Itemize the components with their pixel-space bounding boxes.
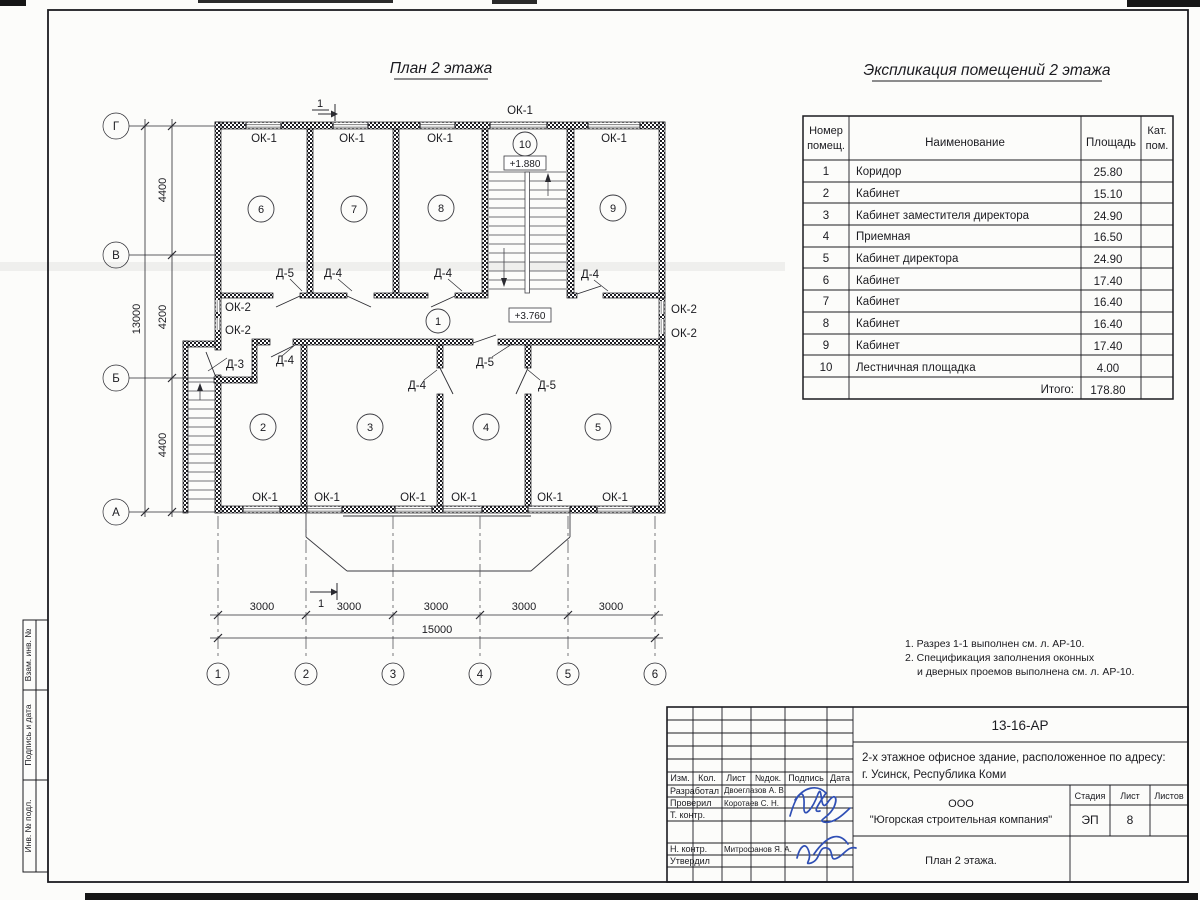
drawing-canvas: Взам. инв. № Подпись и дата Инв. № подл.… <box>0 0 1200 900</box>
col-kol: Кол. <box>698 773 716 783</box>
grid-6: 6 <box>652 669 658 681</box>
d4-label: Д-4 <box>276 355 295 367</box>
row-area: 4.00 <box>1097 363 1119 375</box>
row-num: 2 <box>823 188 829 200</box>
row-area: 25.80 <box>1094 167 1123 179</box>
grid-4: 4 <box>477 669 484 681</box>
walls <box>183 122 665 513</box>
company-line1: ООО <box>948 798 974 810</box>
col-date: Дата <box>830 773 850 783</box>
doc-number: 13-16-АР <box>991 718 1048 733</box>
ok1-label: ОК-1 <box>507 105 533 117</box>
section-marks: 1 1 <box>310 98 338 610</box>
row-area: 17.40 <box>1094 276 1123 288</box>
dim-bay-3: 3000 <box>424 601 448 613</box>
ok1-label: ОК-1 <box>602 492 628 504</box>
row-name: Кабинет <box>856 275 900 287</box>
stage-label: Стадия <box>1075 791 1106 801</box>
row-name: Кабинет <box>856 296 900 308</box>
table-row: 4 Приемная 16.50 <box>823 231 1123 244</box>
d4-label: Д-4 <box>434 268 453 280</box>
ok2-label: ОК-2 <box>225 325 251 337</box>
room-4: 4 <box>483 422 489 434</box>
dim-bay-5: 3000 <box>599 601 623 613</box>
drawing-sheet: Взам. инв. № Подпись и дата Инв. № подл.… <box>0 0 1200 900</box>
person-ncontrol: Митрофанов Я. А. <box>724 845 792 854</box>
sheet-number: 8 <box>1127 813 1134 827</box>
row-num: 4 <box>823 231 830 243</box>
stamp-podpis: Подпись и дата <box>23 704 33 765</box>
person-developed: Двоеглазов А. В. <box>724 786 786 795</box>
d5-label: Д-5 <box>476 357 494 369</box>
title-block-header-row: Изм. Кол. Лист №док. Подпись Дата <box>670 773 850 783</box>
d4-label: Д-4 <box>581 269 600 281</box>
row-area: 17.40 <box>1094 341 1123 353</box>
row-area: 16.40 <box>1094 297 1123 309</box>
room-6: 6 <box>258 204 264 216</box>
level-stair: +1.880 <box>510 159 541 170</box>
role-developed: Разработал <box>670 786 719 796</box>
row-name: Кабинет директора <box>856 253 959 265</box>
table-row: 8 Кабинет 16.40 <box>823 318 1123 331</box>
d5-label: Д-5 <box>276 268 294 280</box>
row-name: Кабинет <box>856 318 900 330</box>
left-dimensions: 4400 4200 4400 13000 <box>131 119 176 517</box>
col-area: Площадь <box>1086 137 1136 149</box>
table-row: 2 Кабинет 15.10 <box>823 188 1123 201</box>
col-list: Лист <box>726 773 746 783</box>
titles: План 2 этажа Экспликация помещений 2 эта… <box>390 60 1111 81</box>
dim-total-width: 15000 <box>422 624 453 636</box>
row-name: Кабинет <box>856 340 900 352</box>
title-block-right: 13-16-АР 2-х этажное офисное здание, рас… <box>862 718 1184 867</box>
grid-1: 1 <box>215 669 221 681</box>
row-num: 6 <box>823 275 829 287</box>
axis-b: Б <box>112 373 120 385</box>
axis-v: В <box>112 250 120 262</box>
table-row: 10 Лестничная площадка 4.00 <box>820 362 1120 375</box>
external-stair <box>188 382 215 499</box>
title-block-roles: Разработал Проверил Т. контр. Н. контр. … <box>670 786 792 866</box>
room-8: 8 <box>438 203 444 215</box>
signature-ncontrol <box>797 837 856 864</box>
col-cat-line2: пом. <box>1146 140 1169 152</box>
ok1-label: ОК-1 <box>251 133 277 145</box>
stamp-vzam: Взам. инв. № <box>23 629 33 682</box>
door-labels: Д-5 Д-4 Д-4 Д-4 Д-3 Д-4 Д-5 Д-4 Д-5 <box>226 268 600 392</box>
plan-title: План 2 этажа <box>390 60 493 77</box>
col-cat-line1: Кат. <box>1147 125 1166 137</box>
ok1-label: ОК-1 <box>427 133 453 145</box>
table-row: 3 Кабинет заместителя директора 24.90 <box>823 210 1123 223</box>
col-sign: Подпись <box>788 773 824 783</box>
row-name: Коридор <box>856 166 901 178</box>
room-2: 2 <box>260 422 266 434</box>
sheet-label: Лист <box>1120 791 1140 801</box>
room-7: 7 <box>351 204 357 216</box>
col-ndoc: №док. <box>755 773 781 783</box>
internal-stair <box>489 172 566 293</box>
level-corridor: +3.760 <box>515 311 546 322</box>
ok2-label: ОК-2 <box>225 302 251 314</box>
section-label-top: 1 <box>317 98 323 110</box>
role-tcontrol: Т. контр. <box>670 810 705 820</box>
table-header: Номер помещ. Наименование Площадь Кат. п… <box>807 125 1168 152</box>
role-approved: Утвердил <box>670 856 710 866</box>
dim-bay-1: 3000 <box>250 601 274 613</box>
grid-3: 3 <box>390 669 396 681</box>
sheet-name: План 2 этажа. <box>925 855 997 867</box>
table-row: 5 Кабинет директора 24.90 <box>823 253 1123 266</box>
table-row: 9 Кабинет 17.40 <box>823 340 1123 353</box>
d4-label: Д-4 <box>324 268 343 280</box>
row-num: 7 <box>823 296 829 308</box>
object-name-line1: 2-х этажное офисное здание, расположенно… <box>862 752 1166 764</box>
row-num: 8 <box>823 318 829 330</box>
floor-plan: Г В Б А 4400 4200 4400 13000 <box>103 98 697 685</box>
specification-table: Номер помещ. Наименование Площадь Кат. п… <box>803 116 1173 399</box>
row-name: Кабинет заместителя директора <box>856 210 1030 222</box>
row-name: Приемная <box>856 231 910 243</box>
row-num: 1 <box>823 166 829 178</box>
window-labels: ОК-1 ОК-1 ОК-1 ОК-1 ОК-1 ОК-1 ОК-1 ОК-1 … <box>225 105 697 504</box>
ok1-label: ОК-1 <box>339 133 365 145</box>
axis-g: Г <box>113 121 120 133</box>
col-num-line1: Номер <box>809 125 843 137</box>
margin-stamp-labels: Взам. инв. № Подпись и дата Инв. № подл. <box>23 629 33 853</box>
axis-a: А <box>112 507 120 519</box>
room-1: 1 <box>435 316 441 328</box>
note-1: 1. Разрез 1-1 выполнен см. л. АР-10. <box>905 638 1084 650</box>
row-num: 5 <box>823 253 829 265</box>
company-line2: "Югорская строительная компания" <box>870 814 1053 826</box>
role-checked: Проверил <box>670 798 711 808</box>
ok1-label: ОК-1 <box>314 492 340 504</box>
dim-v2: 4200 <box>157 305 169 329</box>
note-2: 2. Спецификация заполнения оконных <box>905 652 1095 664</box>
d5-label: Д-5 <box>538 380 556 392</box>
role-ncontrol: Н. контр. <box>670 844 707 854</box>
dim-bay-2: 3000 <box>337 601 361 613</box>
total-label: Итого: <box>1041 384 1074 396</box>
table-row: 1 Коридор 25.80 <box>823 166 1123 179</box>
col-izm: Изм. <box>670 773 689 783</box>
signatures <box>790 788 856 864</box>
note-2-cont: и дверных проемов выполнена см. л. АР-10… <box>917 666 1134 678</box>
object-name-line2: г. Усинск, Республика Коми <box>862 769 1006 781</box>
grid-2: 2 <box>303 669 309 681</box>
column-grid: 3000 3000 3000 3000 3000 15000 1 2 3 4 5… <box>207 516 666 685</box>
ok1-label: ОК-1 <box>601 133 627 145</box>
stage-value: ЭП <box>1081 813 1098 827</box>
row-area: 16.50 <box>1094 232 1123 244</box>
table-row: 6 Кабинет 17.40 <box>823 275 1123 288</box>
row-area: 24.90 <box>1094 211 1123 223</box>
table-total-row: Итого: 178.80 <box>1041 384 1126 397</box>
col-name: Наименование <box>925 137 1005 149</box>
row-num: 10 <box>820 362 833 374</box>
room-9: 9 <box>610 203 616 215</box>
dim-total-height: 13000 <box>131 304 143 335</box>
dim-v3: 4400 <box>157 433 169 457</box>
d3-label: Д-3 <box>226 359 244 371</box>
room-3: 3 <box>367 422 373 434</box>
row-area: 15.10 <box>1094 189 1123 201</box>
table-title: Экспликация помещений 2 этажа <box>863 62 1110 79</box>
ok2-label: ОК-2 <box>671 304 697 316</box>
ok1-label: ОК-1 <box>451 492 477 504</box>
row-num: 9 <box>823 340 829 352</box>
total-value: 178.80 <box>1090 385 1125 397</box>
row-area: 16.40 <box>1094 319 1123 331</box>
col-num-line2: помещ. <box>807 140 845 152</box>
section-label-bottom: 1 <box>318 598 324 610</box>
stamp-inv: Инв. № подл. <box>23 800 33 853</box>
person-checked: Коротаев С. Н. <box>724 799 779 808</box>
row-num: 3 <box>823 210 829 222</box>
table-row: 7 Кабинет 16.40 <box>823 296 1123 309</box>
row-name: Лестничная площадка <box>856 362 976 374</box>
title-block: Изм. Кол. Лист №док. Подпись Дата Разраб… <box>667 707 1188 882</box>
scan-artifacts <box>0 0 1200 900</box>
d4-label: Д-4 <box>408 380 427 392</box>
ok1-label: ОК-1 <box>400 492 426 504</box>
ok1-label: ОК-1 <box>537 492 563 504</box>
ok2-label: ОК-2 <box>671 328 697 340</box>
room-10: 10 <box>519 139 531 151</box>
sheets-label: Листов <box>1154 791 1183 801</box>
dim-bay-4: 3000 <box>512 601 536 613</box>
notes: 1. Разрез 1-1 выполнен см. л. АР-10. 2. … <box>905 638 1134 678</box>
entrance-canopy <box>306 513 570 571</box>
dim-v1: 4400 <box>157 178 169 202</box>
room-5: 5 <box>595 422 601 434</box>
ok1-label: ОК-1 <box>252 492 278 504</box>
row-name: Кабинет <box>856 188 900 200</box>
row-area: 24.90 <box>1094 254 1123 266</box>
grid-5: 5 <box>565 669 571 681</box>
table-rows: 1 Коридор 25.80 2 Кабинет 15.10 3 Кабине… <box>820 166 1126 397</box>
